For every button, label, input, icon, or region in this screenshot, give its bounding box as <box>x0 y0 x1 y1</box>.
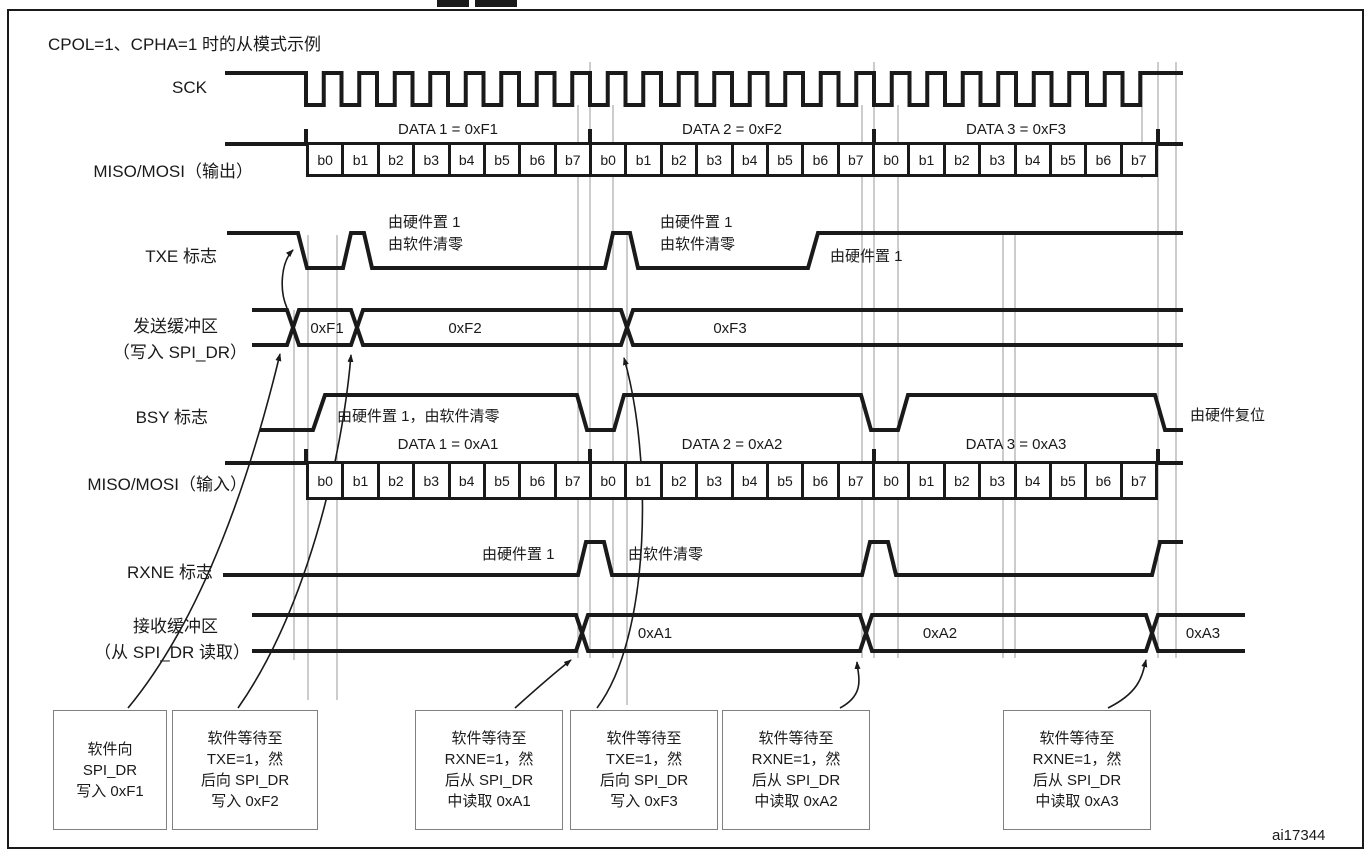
rxne-annotation-1: 由硬件置 1 <box>482 543 555 564</box>
bit-cell: b0 <box>872 464 907 497</box>
bit-cell: b3 <box>412 464 447 497</box>
callout-line: 后从 SPI_DR <box>445 770 533 791</box>
tx-buffer-value-3: 0xF3 <box>690 320 770 337</box>
data-group-label-in-1: DATA 1 = 0xA1 <box>306 436 590 453</box>
bit-cell: b1 <box>624 464 659 497</box>
bit-cell: b4 <box>1014 145 1049 174</box>
label-bsy-flag: BSY 标志 <box>0 403 208 428</box>
label-txe-flag: TXE 标志 <box>0 242 217 267</box>
bit-cell: b4 <box>731 145 766 174</box>
rx-buffer-value-3: 0xA3 <box>1163 625 1243 642</box>
callout-line: 后向 SPI_DR <box>201 770 289 791</box>
bit-cell: b2 <box>660 145 695 174</box>
bit-cell: b5 <box>766 145 801 174</box>
callout-box: 软件等待至RXNE=1，然后从 SPI_DR中读取 0xA3 <box>1003 710 1151 830</box>
rxne-annotation-2: 由软件清零 <box>628 543 703 564</box>
label-miso-mosi-in: MISO/MOSI（输入） <box>0 470 247 495</box>
bit-cell: b7 <box>1120 145 1155 174</box>
txe-annotation-2a: 由硬件置 1 <box>660 211 733 232</box>
bit-cell: b7 <box>837 145 872 174</box>
callout-line: 软件等待至 <box>451 728 526 749</box>
bit-cell: b1 <box>907 464 942 497</box>
arrow-callout3-to-rx-buffer <box>515 660 571 708</box>
callout-box: 软件等待至TXE=1，然后向 SPI_DR写入 0xF3 <box>570 710 718 830</box>
rx-buffer-bus-b <box>252 615 1245 651</box>
bit-cell: b2 <box>943 145 978 174</box>
bit-cell: b7 <box>837 464 872 497</box>
bit-cell: b2 <box>377 464 412 497</box>
arrow-crossover-to-txe-fall <box>282 250 293 308</box>
bit-cell: b7 <box>554 464 589 497</box>
bit-cell: b5 <box>1049 145 1084 174</box>
bit-cell: b3 <box>412 145 447 174</box>
callout-line: 软件等待至 <box>207 728 282 749</box>
label-rxne-flag: RXNE 标志 <box>0 558 213 583</box>
bit-cell: b5 <box>483 145 518 174</box>
callout-line: 软件向 <box>87 739 132 760</box>
rx-buffer-bus-a <box>252 615 1245 651</box>
bit-cell: b2 <box>943 464 978 497</box>
bit-cell: b2 <box>377 145 412 174</box>
callout-box: 软件向SPI_DR写入 0xF1 <box>53 710 167 830</box>
callout-line: 后从 SPI_DR <box>752 770 840 791</box>
bit-cell: b1 <box>624 145 659 174</box>
miso-mosi-output-bit-row: b0b1b2b3b4b5b6b7b0b1b2b3b4b5b6b7b0b1b2b3… <box>306 142 1158 177</box>
callout-box: 软件等待至RXNE=1，然后从 SPI_DR中读取 0xA1 <box>415 710 563 830</box>
bit-cell: b1 <box>341 145 376 174</box>
bit-cell: b5 <box>1049 464 1084 497</box>
bit-cell: b6 <box>801 464 836 497</box>
callout-line: 软件等待至 <box>1039 728 1114 749</box>
timing-diagram-figure: CPOL=1、CPHA=1 时的从模式示例 SCK MISO/MOSI（输出） … <box>0 0 1371 855</box>
bit-cell: b1 <box>341 464 376 497</box>
data-group-label-out-1: DATA 1 = 0xF1 <box>306 121 590 138</box>
bit-cell: b5 <box>483 464 518 497</box>
bit-cell: b3 <box>978 464 1013 497</box>
txe-annotation-2b: 由软件清零 <box>660 233 735 254</box>
callout-box: 软件等待至RXNE=1，然后从 SPI_DR中读取 0xA2 <box>722 710 870 830</box>
miso-mosi-input-bit-row: b0b1b2b3b4b5b6b7b0b1b2b3b4b5b6b7b0b1b2b3… <box>306 461 1158 500</box>
bit-cell: b6 <box>1084 464 1119 497</box>
txe-annotation-3: 由硬件置 1 <box>830 245 903 266</box>
bit-cell: b4 <box>448 145 483 174</box>
bit-cell: b7 <box>554 145 589 174</box>
bit-cell: b2 <box>660 464 695 497</box>
bit-cell: b0 <box>309 464 341 497</box>
bit-cell: b7 <box>1120 464 1155 497</box>
callout-line: TXE=1，然 <box>606 749 682 770</box>
label-sck: SCK <box>0 78 207 98</box>
bit-cell: b0 <box>309 145 341 174</box>
bit-cell: b3 <box>695 464 730 497</box>
callout-line: 中读取 0xA3 <box>1035 791 1118 812</box>
bsy-annotation-1: 由硬件置 1，由软件清零 <box>337 405 500 426</box>
bit-cell: b6 <box>1084 145 1119 174</box>
callout-line: 后向 SPI_DR <box>600 770 688 791</box>
callout-line: RXNE=1，然 <box>1033 749 1122 770</box>
bit-cell: b6 <box>801 145 836 174</box>
bit-cell: b0 <box>589 145 624 174</box>
tx-buffer-value-1: 0xF1 <box>287 320 367 337</box>
txe-annotation-1b: 由软件清零 <box>388 233 463 254</box>
data-group-label-in-3: DATA 3 = 0xA3 <box>874 436 1158 453</box>
label-tx-buffer: 发送缓冲区 <box>0 312 218 337</box>
txe-annotation-1a: 由硬件置 1 <box>388 211 461 232</box>
bit-cell: b3 <box>978 145 1013 174</box>
callout-line: 写入 0xF3 <box>610 791 678 812</box>
bit-cell: b6 <box>518 145 553 174</box>
callout-line: 后从 SPI_DR <box>1033 770 1121 791</box>
callout-line: 软件等待至 <box>606 728 681 749</box>
bit-cell: b5 <box>766 464 801 497</box>
bit-cell: b0 <box>872 145 907 174</box>
data-group-label-in-2: DATA 2 = 0xA2 <box>590 436 874 453</box>
bit-cell: b4 <box>1014 464 1049 497</box>
label-rx-buffer-sub: （从 SPI_DR 读取） <box>0 638 250 663</box>
bit-cell: b0 <box>589 464 624 497</box>
figure-code: ai17344 <box>1272 827 1325 844</box>
callout-line: 写入 0xF2 <box>211 791 279 812</box>
callout-line: 软件等待至 <box>758 728 833 749</box>
data-group-label-out-3: DATA 3 = 0xF3 <box>874 121 1158 138</box>
bit-cell: b4 <box>731 464 766 497</box>
callout-line: TXE=1，然 <box>207 749 283 770</box>
sck-waveform <box>225 73 1183 105</box>
callout-line: RXNE=1，然 <box>752 749 841 770</box>
tx-buffer-value-2: 0xF2 <box>425 320 505 337</box>
bsy-annotation-2: 由硬件复位 <box>1190 404 1265 425</box>
callout-line: RXNE=1，然 <box>445 749 534 770</box>
callout-line: SPI_DR <box>83 760 137 781</box>
arrow-callout6-to-rx-buffer <box>1108 660 1146 708</box>
data-group-label-out-2: DATA 2 = 0xF2 <box>590 121 874 138</box>
bit-cell: b4 <box>448 464 483 497</box>
callout-line: 中读取 0xA1 <box>447 791 530 812</box>
callout-line: 写入 0xF1 <box>76 781 144 802</box>
rx-buffer-value-1: 0xA1 <box>615 625 695 642</box>
arrow-callout5-to-rx-buffer <box>840 662 859 708</box>
callout-line: 中读取 0xA2 <box>754 791 837 812</box>
callout-box: 软件等待至TXE=1，然后向 SPI_DR写入 0xF2 <box>172 710 318 830</box>
bit-cell: b1 <box>907 145 942 174</box>
label-rx-buffer: 接收缓冲区 <box>0 612 218 637</box>
label-miso-mosi-out: MISO/MOSI（输出） <box>0 157 253 182</box>
label-tx-buffer-sub: （写入 SPI_DR） <box>0 338 247 363</box>
bit-cell: b6 <box>518 464 553 497</box>
bit-cell: b3 <box>695 145 730 174</box>
rx-buffer-value-2: 0xA2 <box>900 625 980 642</box>
